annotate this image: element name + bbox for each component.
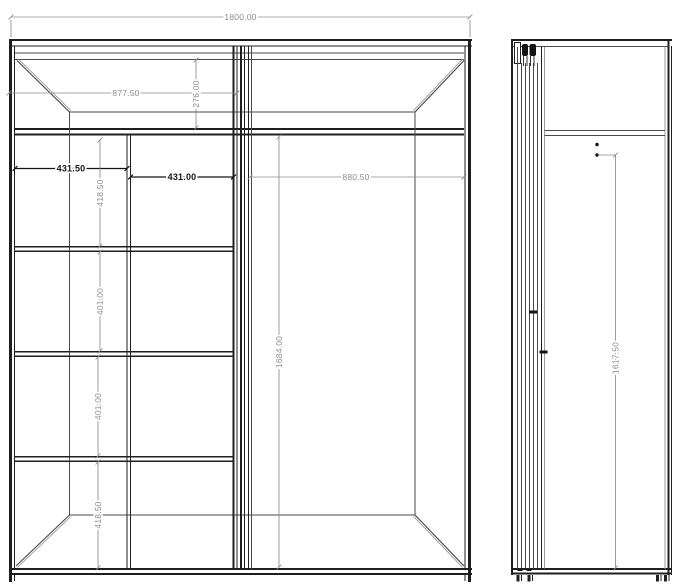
dim-row4-height-label: 418.50 [93, 501, 103, 528]
door-handle-mark-upper [529, 311, 537, 314]
dim-center-column-width-label: 431.00 [168, 172, 197, 182]
dim-overall-width: 1800.00 [9, 12, 473, 37]
side-feet [518, 575, 669, 582]
front-feet [11, 575, 470, 582]
dim-left-column-width-label: 431.50 [57, 164, 86, 174]
center-partition-lines [234, 46, 252, 569]
side-top-shelf-line [545, 131, 666, 136]
front-dimensions: 1800.00 877.50 276.00 431.50 [7, 12, 473, 570]
shelf-pin-dots [595, 143, 598, 157]
dim-row2-height: 401.00 [95, 250, 105, 354]
front-view: 1800.00 877.50 276.00 431.50 [7, 12, 473, 582]
cad-drawing-canvas: 1800.00 877.50 276.00 431.50 [0, 0, 680, 587]
dim-open-section-width: 880.50 [248, 172, 467, 182]
dim-top-compartment-height: 276.00 [191, 58, 201, 131]
side-view: 1617.50 [511, 39, 672, 582]
dim-row3-height: 401.00 [93, 355, 103, 459]
dim-open-section-height: 1684.00 [274, 135, 284, 570]
side-outline [511, 39, 672, 575]
dim-row1-height: 418.50 [95, 138, 105, 249]
dim-left-column-width: 431.50 [13, 164, 130, 174]
dim-open-section-height-label: 1684.00 [274, 336, 284, 368]
dim-left-section-width-label: 877.50 [112, 88, 139, 98]
dim-row3-height-label: 401.00 [93, 393, 103, 420]
wardrobe-technical-drawing: 1800.00 877.50 276.00 431.50 [0, 0, 680, 587]
dim-row2-height-label: 401.00 [95, 288, 105, 315]
door-roller-icon [522, 44, 536, 66]
dim-row4-height: 418.50 [93, 460, 103, 571]
door-handle-mark-lower [540, 351, 548, 354]
sliding-door-profiles [515, 43, 545, 569]
dim-overall-width-label: 1800.00 [224, 12, 256, 22]
dim-side-interior-height: 1617.50 [599, 153, 621, 571]
dim-top-compartment-height-label: 276.00 [191, 80, 201, 107]
dim-left-section-width: 877.50 [7, 88, 240, 98]
dim-side-interior-height-label: 1617.50 [611, 342, 621, 374]
dim-center-column-width: 431.00 [128, 172, 236, 182]
dim-row1-height-label: 418.50 [95, 179, 105, 206]
shelf-lines [15, 247, 234, 462]
dim-open-section-width-label: 880.50 [342, 172, 369, 182]
